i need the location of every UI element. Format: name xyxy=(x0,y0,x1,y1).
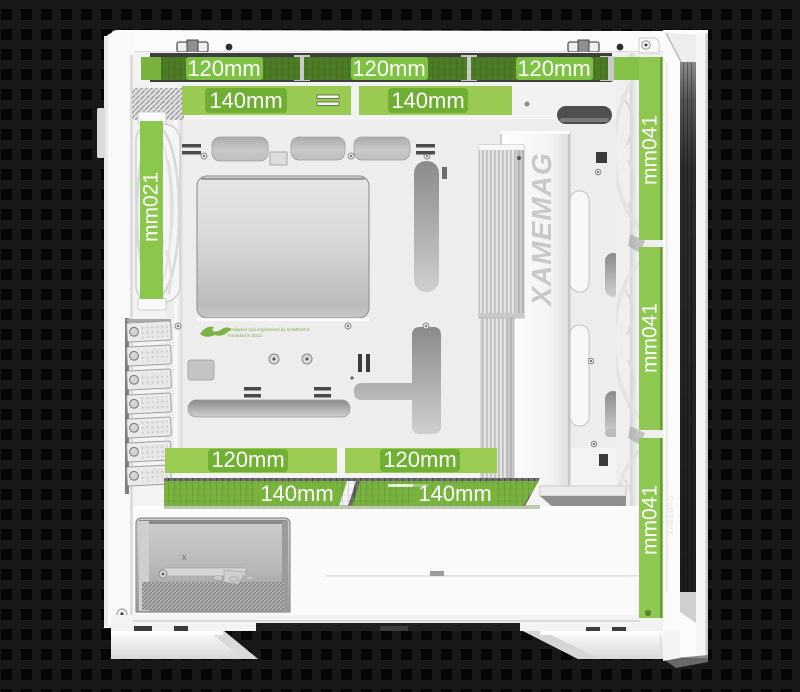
svg-text:mm041: mm041 xyxy=(639,303,662,373)
svg-text:Founded in 2013: Founded in 2013 xyxy=(228,333,262,338)
svg-text:mm021: mm021 xyxy=(140,172,163,242)
svg-text:XAMEMAG: XAMEMAG xyxy=(526,152,557,307)
svg-text:140mm: 140mm xyxy=(418,481,491,506)
svg-text:mm041: mm041 xyxy=(639,485,662,555)
svg-text:XAMEMAG: XAMEMAG xyxy=(668,495,675,535)
svg-text:x: x xyxy=(182,552,187,562)
svg-text:120mm: 120mm xyxy=(383,447,456,472)
svg-text:120mm: 120mm xyxy=(517,56,590,81)
svg-text:140mm: 140mm xyxy=(209,88,282,113)
svg-text:120mm: 120mm xyxy=(352,56,425,81)
svg-text:140mm: 140mm xyxy=(260,481,333,506)
svg-text:120mm: 120mm xyxy=(187,56,260,81)
svg-text:140mm: 140mm xyxy=(391,88,464,113)
svg-text:120mm: 120mm xyxy=(211,447,284,472)
svg-text:mm041: mm041 xyxy=(639,115,662,185)
svg-text:Designed and engineered by GAM: Designed and engineered by GAMEMAX xyxy=(228,327,310,332)
